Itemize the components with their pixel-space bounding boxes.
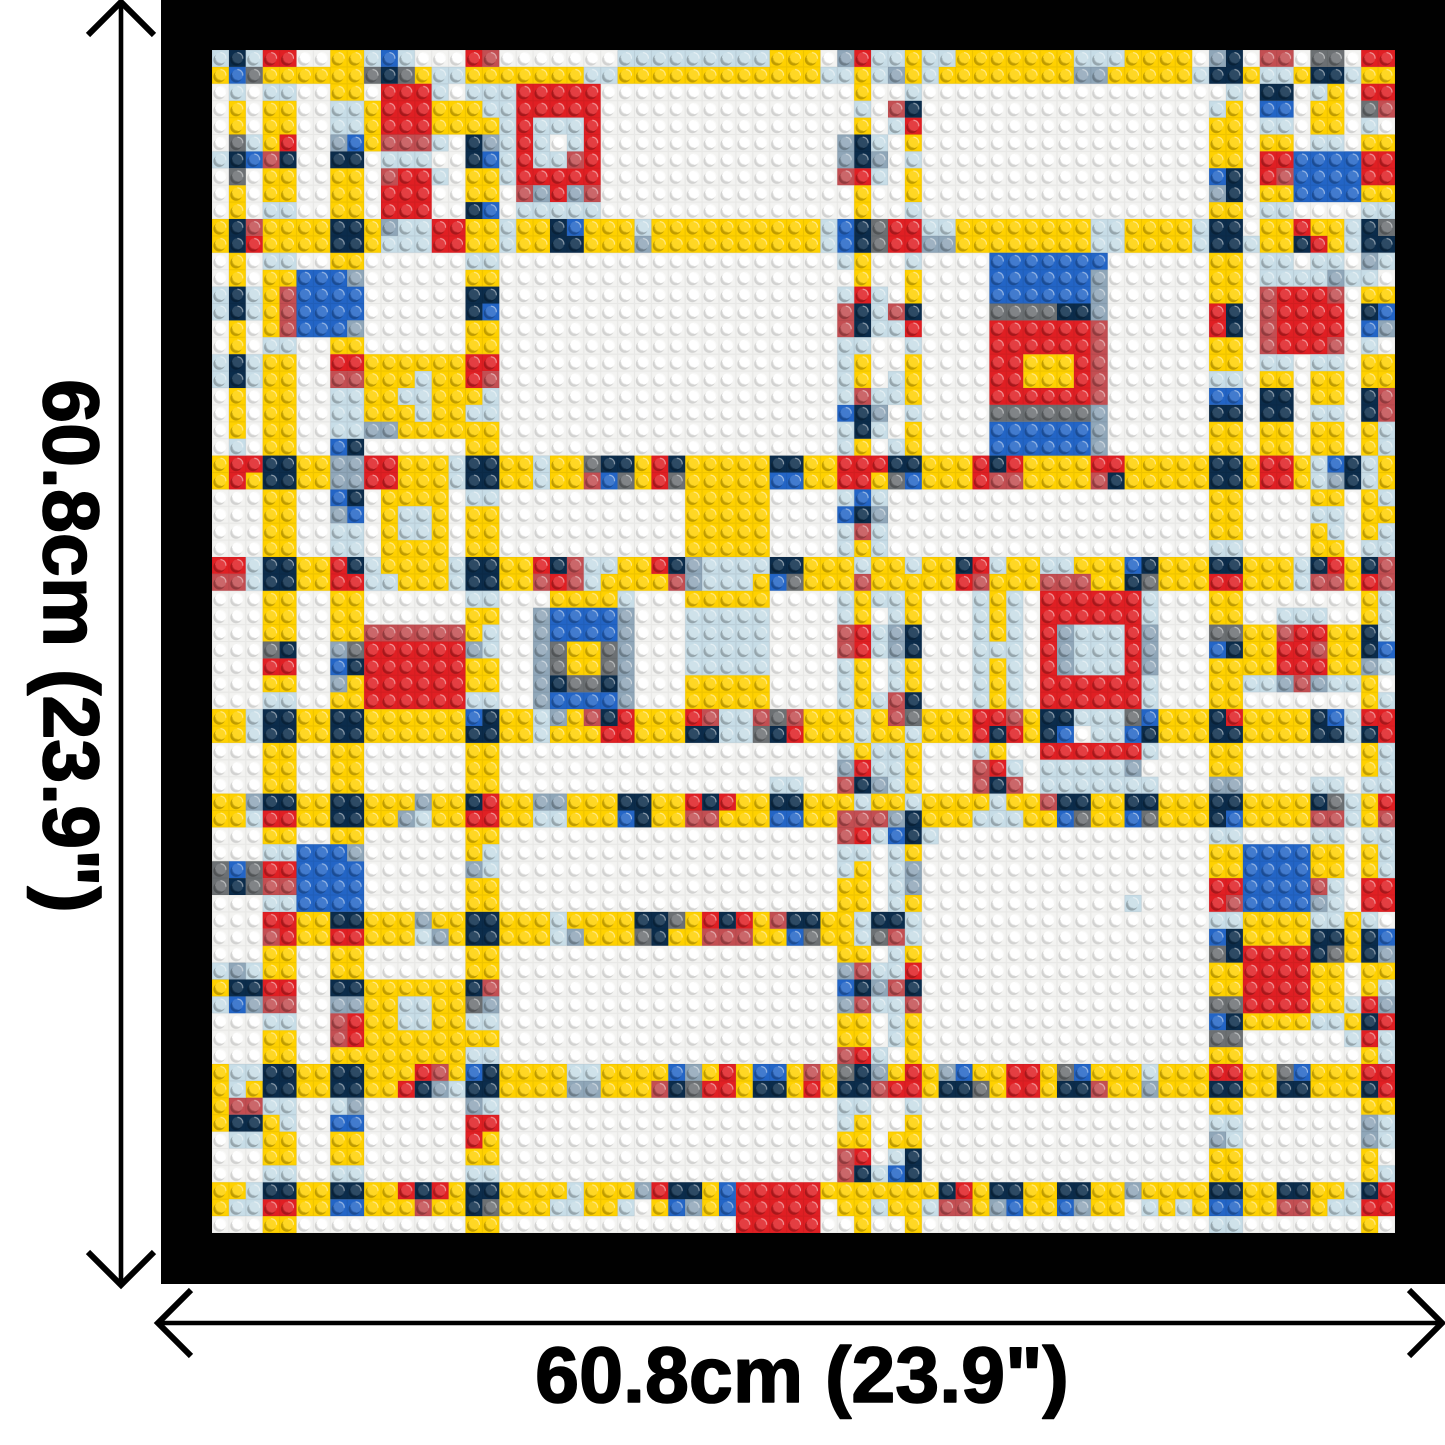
svg-text:60.8cm (23.9"): 60.8cm (23.9"): [27, 379, 116, 913]
svg-text:60.8cm (23.9"): 60.8cm (23.9"): [535, 1330, 1069, 1419]
